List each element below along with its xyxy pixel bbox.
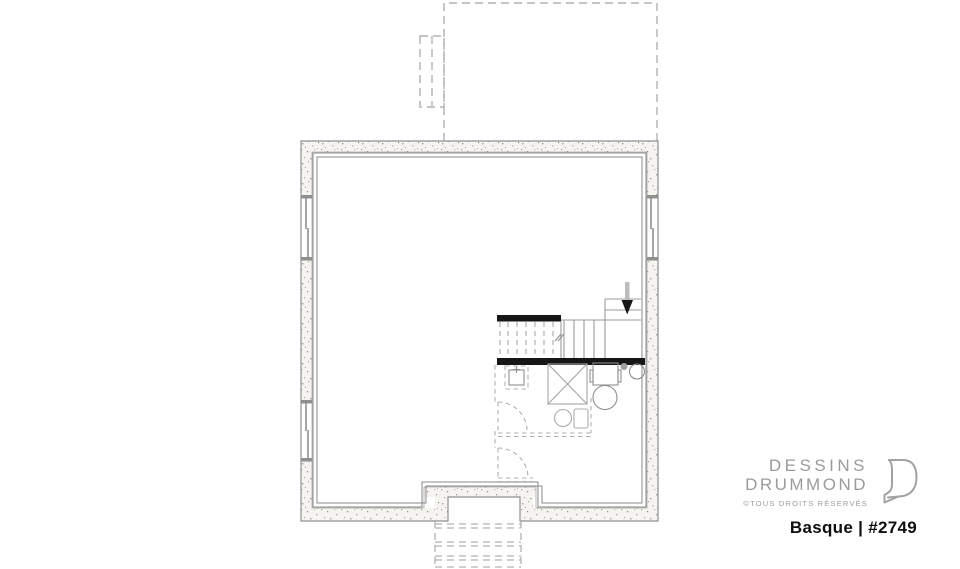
upper-level-dashed-outline (420, 3, 657, 141)
plan-title: Basque | #2749 (790, 518, 917, 538)
future-sink (555, 409, 589, 428)
stair-header-bar (497, 315, 561, 322)
staircase (497, 282, 645, 365)
future-bathroom (495, 363, 645, 482)
shower (548, 364, 587, 404)
exterior-walkout-stairs (435, 521, 521, 569)
walkout-bump-wall (424, 487, 536, 497)
stair-break-mark (555, 334, 564, 341)
brand-block: DESSINS DRUMMOND ©TOUS DROITS RÉSERVÉS (743, 456, 918, 508)
interior-wall-lines (313, 153, 646, 507)
toilet (590, 363, 621, 410)
floor-plan-page: DESSINS DRUMMOND ©TOUS DROITS RÉSERVÉS B… (0, 0, 960, 569)
upper-stairs-dashed (420, 36, 444, 107)
copyright-notice: ©TOUS DROITS RÉSERVÉS (743, 499, 868, 508)
under-stair-dashed-treads (500, 322, 553, 356)
brand-name-line1: DESSINS (743, 456, 868, 475)
brand-name-line2: DRUMMOND (743, 475, 868, 494)
drummond-d-logo (877, 456, 918, 506)
floor-drain (621, 363, 628, 370)
